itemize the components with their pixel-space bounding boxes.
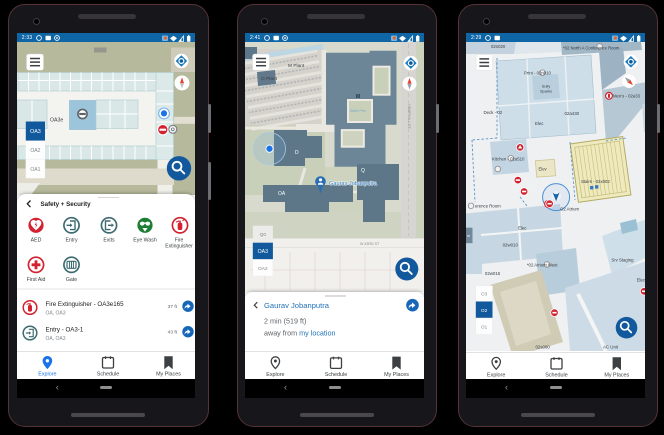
svg-text:Eye Wash: Eye Wash — [133, 238, 157, 244]
svg-text:OA2: OA2 — [30, 148, 40, 154]
svg-text:Gaurav Jobanputra: Gaurav Jobanputra — [264, 301, 330, 310]
svg-text:O2: O2 — [481, 308, 488, 314]
svg-text:Fire: Fire — [174, 238, 183, 244]
svg-text:away from my location: away from my location — [264, 329, 336, 338]
svg-text:02n020: 02n020 — [491, 44, 506, 49]
svg-text:Schedule: Schedule — [325, 371, 347, 377]
svg-text:Extinguisher: Extinguisher — [165, 244, 193, 250]
svg-text:OA3: OA3 — [258, 249, 268, 255]
svg-text:43 ft: 43 ft — [167, 330, 177, 336]
svg-text:O2 Atrium: O2 Atrium — [560, 207, 579, 212]
svg-text:W 43RD ST: W 43RD ST — [360, 242, 380, 246]
svg-text:Srv Staging: Srv Staging — [611, 258, 634, 263]
svg-text:Fire Extinguisher - OA3e165: Fire Extinguisher - OA3e165 — [45, 301, 124, 308]
svg-text:Gate: Gate — [66, 277, 77, 283]
svg-text:Entry - OA3-1: Entry - OA3-1 — [45, 327, 83, 334]
svg-text:OA3: OA3 — [30, 129, 41, 135]
svg-text:OA1: OA1 — [30, 167, 40, 173]
svg-text:02s080: 02s080 — [536, 345, 551, 350]
svg-text:Exits: Exits — [103, 238, 115, 244]
svg-text:M Plant: M Plant — [288, 63, 305, 69]
svg-text:Elec: Elec — [518, 226, 527, 231]
svg-text:Elec: Elec — [637, 278, 645, 283]
svg-text:AED: AED — [30, 238, 41, 244]
svg-text:Safety + Security: Safety + Security — [40, 201, 91, 208]
svg-text:HEMPHILL ST: HEMPHILL ST — [407, 104, 411, 129]
svg-text:Entry: Entry — [65, 238, 78, 244]
svg-text:Men's - 02a33: Men's - 02a33 — [613, 94, 641, 99]
svg-text:Print - 02n010: Print - 02n010 — [524, 71, 552, 76]
svg-text:erence Room: erence Room — [475, 204, 501, 209]
svg-text:My Places: My Places — [156, 372, 181, 378]
svg-text:Kitchen - 02a510: Kitchen - 02a510 — [492, 157, 525, 162]
svg-text:AC Unit: AC Unit — [603, 345, 619, 350]
svg-text:First Aid: First Aid — [26, 277, 45, 283]
svg-text:Elev: Elev — [539, 167, 548, 172]
svg-text:OA: OA — [278, 191, 286, 197]
svg-text:Deck - 02: Deck - 02 — [484, 110, 503, 115]
svg-text:*02 Atrium West: *02 Atrium West — [527, 263, 558, 268]
svg-text:Gaurav Jobanputra: Gaurav Jobanputra — [329, 181, 378, 187]
svg-text:OA, OA3: OA, OA3 — [45, 336, 65, 342]
svg-text:Explore: Explore — [38, 372, 56, 378]
svg-text:My Places: My Places — [604, 372, 629, 378]
svg-text:m: m — [467, 234, 470, 238]
svg-text:Tuttle Pen: Tuttle Pen — [349, 109, 366, 113]
svg-text:My Places: My Places — [384, 371, 409, 377]
svg-text:Sparks: Sparks — [540, 89, 552, 94]
svg-text:02a430: 02a430 — [564, 111, 579, 116]
svg-text:*02 North A Conference Room: *02 North A Conference Room — [563, 46, 620, 51]
svg-text:M: M — [356, 94, 360, 100]
svg-text:O1: O1 — [481, 325, 488, 330]
svg-text:OA3e: OA3e — [50, 118, 63, 124]
svg-text:37 ft: 37 ft — [167, 304, 177, 310]
svg-text:Q0: Q0 — [260, 232, 267, 238]
svg-text:2 min (519 ft): 2 min (519 ft) — [264, 317, 306, 326]
svg-text:02w015: 02w015 — [485, 271, 501, 276]
svg-text:Schedule: Schedule — [545, 372, 567, 378]
svg-text:Stairs - 02x002: Stairs - 02x002 — [581, 179, 610, 184]
svg-text:Explore: Explore — [266, 371, 284, 377]
svg-text:02w010: 02w010 — [503, 243, 519, 248]
svg-text:O3: O3 — [481, 292, 488, 297]
svg-text:Schedule: Schedule — [97, 372, 119, 378]
svg-text:D: D — [295, 150, 299, 156]
svg-text:OA2: OA2 — [258, 266, 268, 272]
svg-text:Elec: Elec — [535, 121, 544, 126]
svg-text:Q: Q — [361, 168, 365, 174]
svg-text:OA, OA3: OA, OA3 — [45, 311, 65, 317]
svg-text:O Plant: O Plant — [261, 76, 278, 82]
svg-text:Explore: Explore — [487, 372, 505, 378]
